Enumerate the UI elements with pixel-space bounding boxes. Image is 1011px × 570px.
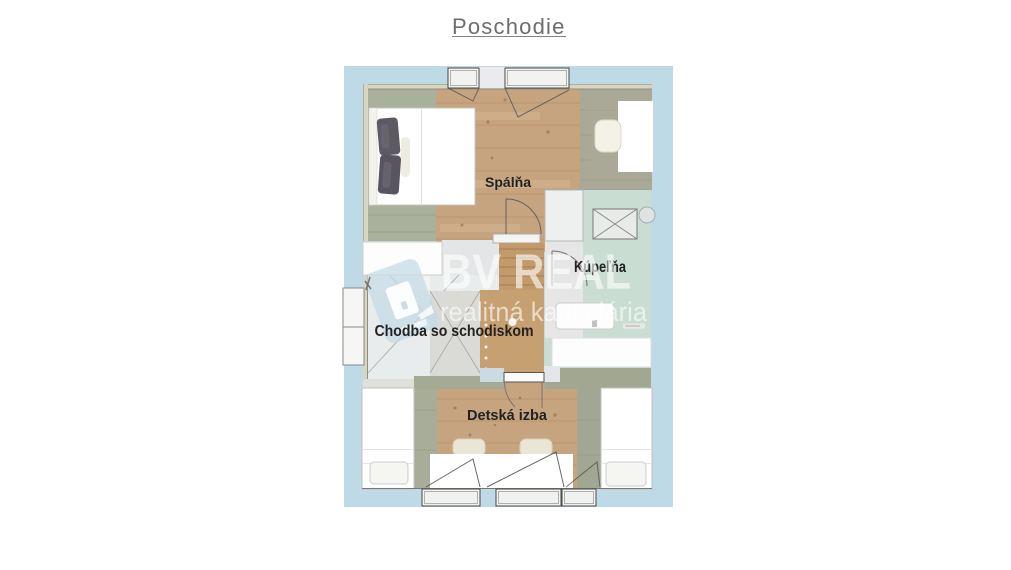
- svg-text:BV REAL: BV REAL: [441, 246, 631, 300]
- svg-text:Spálňa: Spálňa: [485, 174, 531, 190]
- svg-text:realitná kancelária: realitná kancelária: [440, 297, 648, 327]
- svg-text:Detská izba: Detská izba: [467, 407, 548, 424]
